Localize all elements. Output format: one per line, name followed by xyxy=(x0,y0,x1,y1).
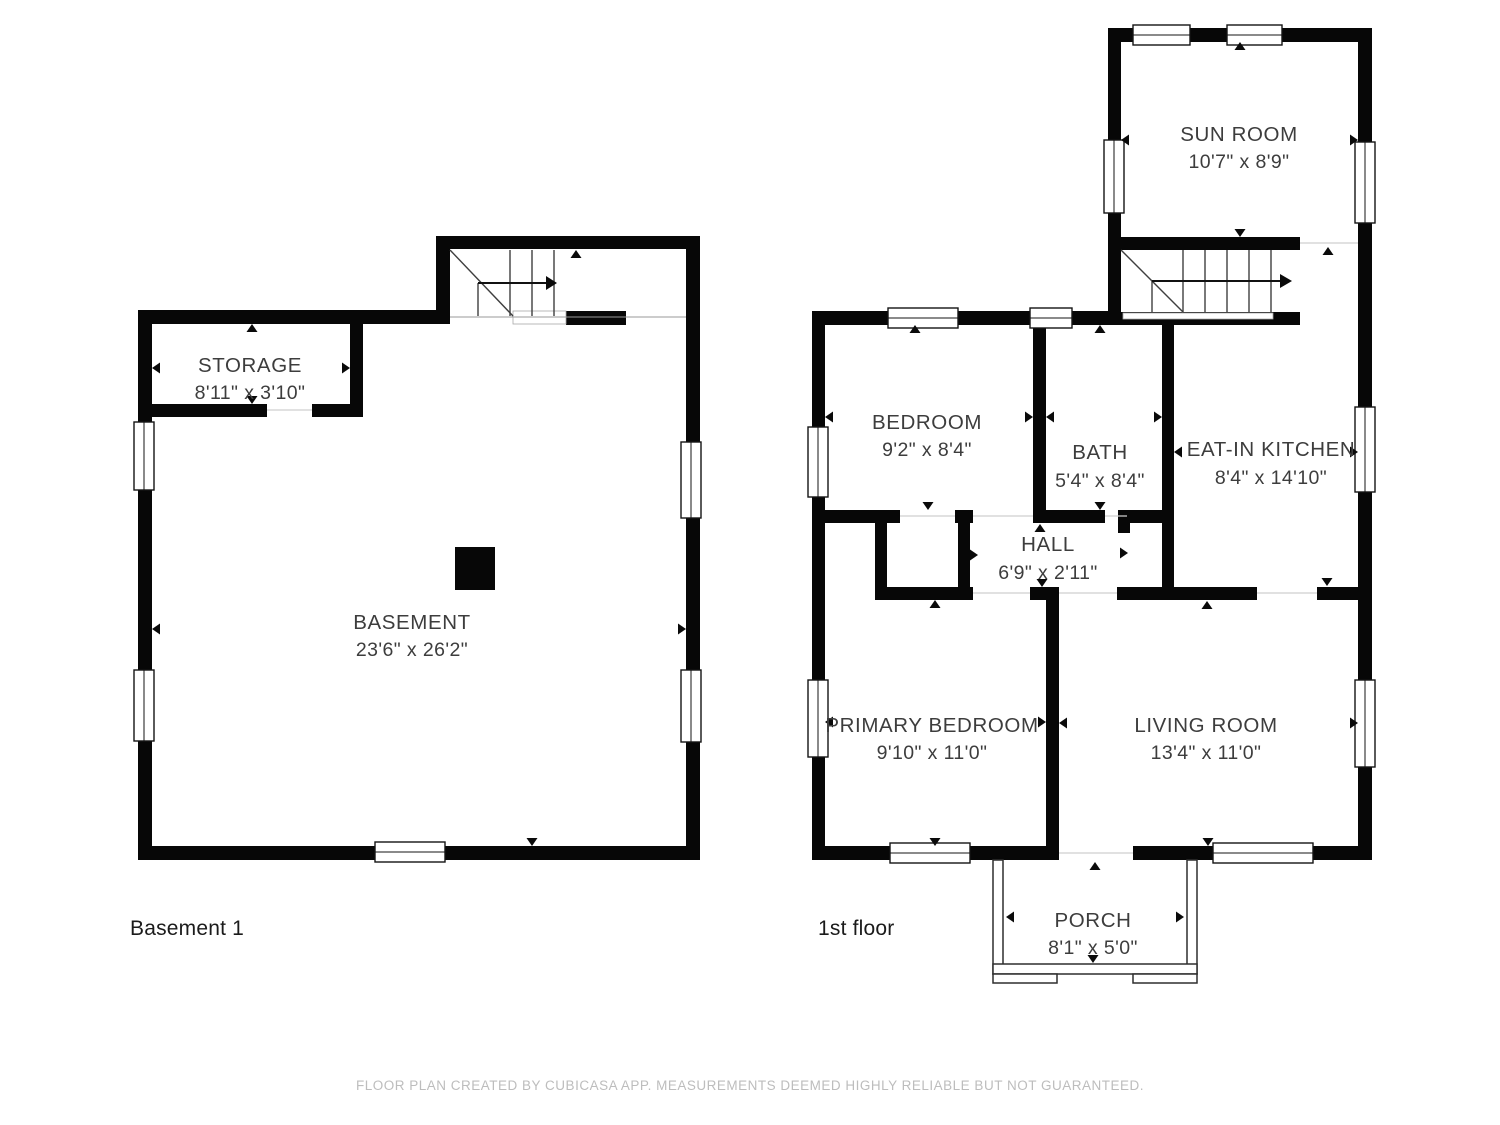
support-post xyxy=(455,547,495,590)
first-floor-plan: SUN ROOM 10'7" x 8'9" BEDROOM 9'2" x 8'4… xyxy=(808,25,1375,983)
room-label: SUN ROOM xyxy=(1180,123,1298,146)
window xyxy=(1030,308,1072,328)
window xyxy=(134,422,154,490)
window xyxy=(1355,407,1375,492)
room-dimensions: 5'4" x 8'4" xyxy=(1055,470,1145,492)
room-dimensions: 8'11" x 3'10" xyxy=(195,382,306,404)
basement-plan: STORAGE 8'11" x 3'10" BASEMENT 23'6" x 2… xyxy=(130,236,701,940)
stair-direction-arrow xyxy=(546,276,557,290)
room-eat-in-kitchen: EAT-IN KITCHEN 8'4" x 14'10" xyxy=(1187,438,1356,489)
staircase-first-floor xyxy=(1121,250,1292,312)
window xyxy=(1104,140,1124,213)
floor-label-first: 1st floor xyxy=(818,917,895,940)
room-label: STORAGE xyxy=(198,354,302,377)
room-dimensions: 10'7" x 8'9" xyxy=(1189,151,1290,173)
window xyxy=(808,427,828,497)
room-storage: STORAGE 8'11" x 3'10" xyxy=(195,354,306,404)
room-primary-bedroom: PRIMARY BEDROOM 9'10" x 11'0" xyxy=(825,714,1038,764)
room-label: BASEMENT xyxy=(353,611,471,634)
room-label: PORCH xyxy=(1054,909,1131,932)
window xyxy=(1355,142,1375,223)
staircase-basement xyxy=(450,250,686,317)
room-dimensions: 9'10" x 11'0" xyxy=(877,742,988,764)
room-label: BATH xyxy=(1072,441,1128,464)
window xyxy=(681,442,701,518)
stair-landing-slot xyxy=(1123,313,1273,319)
floor-plan-page: STORAGE 8'11" x 3'10" BASEMENT 23'6" x 2… xyxy=(0,0,1500,1125)
room-dimensions: 23'6" x 26'2" xyxy=(356,639,468,661)
window xyxy=(1355,680,1375,767)
window xyxy=(375,842,445,862)
room-label: BEDROOM xyxy=(872,411,982,434)
room-label: EAT-IN KITCHEN xyxy=(1187,438,1356,461)
window xyxy=(1227,25,1282,45)
basement-walls xyxy=(138,236,700,860)
room-bedroom: BEDROOM 9'2" x 8'4" xyxy=(872,411,982,461)
room-porch: PORCH 8'1" x 5'0" xyxy=(1048,909,1138,959)
room-label: HALL xyxy=(1021,533,1075,556)
window xyxy=(1133,25,1190,45)
floor-label-basement: Basement 1 xyxy=(130,917,244,940)
measurement-arrows-basement xyxy=(152,250,686,846)
window xyxy=(681,670,701,742)
room-basement: BASEMENT 23'6" x 26'2" xyxy=(353,611,471,661)
window xyxy=(1213,843,1313,863)
floor-plan-canvas: STORAGE 8'11" x 3'10" BASEMENT 23'6" x 2… xyxy=(0,0,1500,1125)
measurement-arrows-first-floor xyxy=(825,42,1358,963)
room-bath: BATH 5'4" x 8'4" xyxy=(1055,441,1145,492)
window xyxy=(890,843,970,863)
room-label: LIVING ROOM xyxy=(1134,714,1277,737)
window xyxy=(134,670,154,741)
room-dimensions: 8'1" x 5'0" xyxy=(1048,937,1138,959)
room-label: PRIMARY BEDROOM xyxy=(825,714,1038,737)
room-dimensions: 6'9" x 2'11" xyxy=(998,562,1097,584)
room-sun-room: SUN ROOM 10'7" x 8'9" xyxy=(1180,123,1298,173)
footer-disclaimer: FLOOR PLAN CREATED BY CUBICASA APP. MEAS… xyxy=(356,1078,1144,1093)
window xyxy=(888,308,958,328)
room-dimensions: 8'4" x 14'10" xyxy=(1215,467,1327,489)
room-dimensions: 9'2" x 8'4" xyxy=(882,439,972,461)
room-living-room: LIVING ROOM 13'4" x 11'0" xyxy=(1134,714,1277,764)
stair-direction-arrow xyxy=(1280,274,1292,288)
room-hall: HALL 6'9" x 2'11" xyxy=(998,533,1097,584)
room-dimensions: 13'4" x 11'0" xyxy=(1151,742,1262,764)
